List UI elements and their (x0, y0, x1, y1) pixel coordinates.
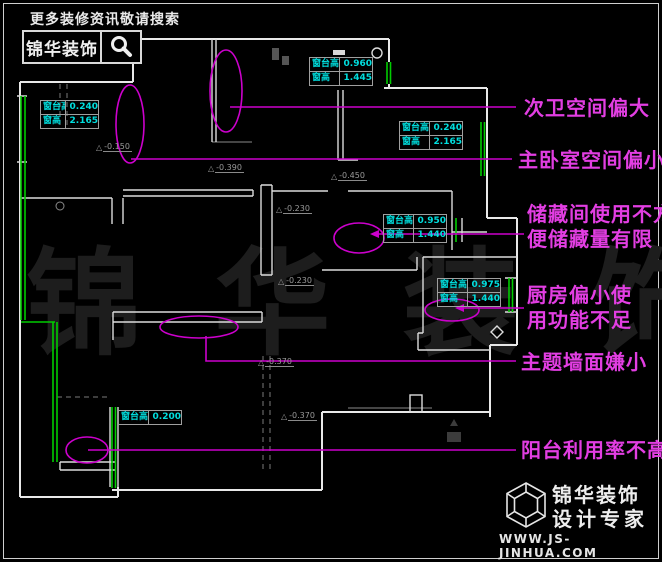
measurement-box-master-bedroom: 窗台高0.240 窗高2.165 (399, 121, 463, 150)
callout-label-bedroom: 主卧室空间偏小 (518, 148, 662, 173)
measure-label: 窗台高 (119, 411, 149, 424)
measurement-box-hall: 窗台高0.960 窗高1.445 (309, 57, 373, 86)
level-triangle-icon: △ (281, 412, 287, 421)
measure-label: 窗高 (438, 293, 468, 306)
level-marker: △-0.230 (278, 276, 314, 286)
measure-value: 0.200 (149, 411, 181, 424)
level-marker: △-0.150 (96, 142, 132, 152)
measure-label: 窗台高 (41, 101, 66, 114)
level-triangle-icon: △ (258, 358, 264, 367)
callout-text: 储藏间使用不方 (527, 202, 662, 227)
level-triangle-icon: △ (331, 172, 337, 181)
level-value: -0.230 (283, 204, 312, 214)
measurement-box-storage: 窗台高0.950 窗高1.440 (383, 214, 447, 243)
measure-label: 窗高 (41, 115, 66, 128)
measure-label: 窗高 (400, 136, 430, 149)
level-triangle-icon: △ (208, 164, 214, 173)
gray-secondary-lines (56, 142, 432, 408)
level-marker: △-0.370 (281, 411, 317, 421)
callout-label-storage: 储藏间使用不方 便储藏量有限 (527, 202, 662, 252)
floorplan-screenshot: { "header": { "search_hint": "更多装修资讯敬请搜索… (0, 0, 662, 562)
measure-value: 0.240 (66, 101, 98, 114)
header-brand-logo: 锦华装饰 (22, 30, 142, 64)
measure-label: 窗台高 (384, 215, 414, 228)
callout-line-themewall (206, 336, 516, 361)
search-hint-text: 更多装修资讯敬请搜索 (30, 9, 180, 29)
callout-text: 用功能不足 (527, 308, 632, 333)
level-value: -0.230 (285, 276, 314, 286)
measure-value: 1.440 (468, 293, 500, 306)
header-brand-name: 锦华装饰 (24, 32, 100, 62)
measure-label: 窗高 (310, 72, 340, 85)
measure-value: 0.975 (468, 279, 500, 292)
level-value: -0.150 (103, 142, 132, 152)
measure-label: 窗高 (384, 229, 414, 242)
measure-value: 0.950 (414, 215, 446, 228)
footer-website: WWW.JS-JINHUA.COM (499, 532, 662, 560)
highlight-ellipse-themewall (160, 316, 238, 338)
footer-cube-logo-icon (503, 480, 549, 534)
measure-value: 0.240 (430, 122, 462, 135)
measure-value: 2.165 (430, 136, 462, 149)
measure-label: 窗台高 (400, 122, 430, 135)
level-marker: △-0.390 (208, 163, 244, 173)
level-marker: △-0.230 (276, 204, 312, 214)
level-triangle-icon: △ (96, 143, 102, 152)
level-value: -0.370 (288, 411, 317, 421)
footer-tagline: 设计专家 (552, 503, 648, 532)
measure-value: 1.445 (340, 72, 372, 85)
level-triangle-icon: △ (278, 277, 284, 286)
search-icon (100, 32, 140, 62)
level-value: -0.450 (338, 171, 367, 181)
measure-value: 1.440 (414, 229, 446, 242)
measurement-box-balcony: 窗台高0.200 (118, 410, 182, 425)
level-marker: △-0.450 (331, 171, 367, 181)
callout-label-bath: 次卫空间偏大 (524, 96, 650, 121)
measure-label: 窗台高 (310, 58, 340, 71)
measure-value: 2.165 (66, 115, 98, 128)
callout-text: 次卫空间偏大 (524, 96, 650, 121)
highlight-ellipse-bath (210, 50, 242, 132)
callout-text: 阳台利用率不高 (521, 438, 662, 463)
callout-label-kitchen: 厨房偏小使 用功能不足 (527, 283, 632, 333)
highlight-ellipse-storage (334, 223, 384, 253)
measure-label: 窗台高 (438, 279, 468, 292)
level-marker: △-0.370 (258, 357, 294, 367)
level-triangle-icon: △ (276, 205, 282, 214)
measure-value: 0.960 (340, 58, 372, 71)
level-value: -0.370 (265, 357, 294, 367)
callout-text: 便储藏量有限 (527, 227, 662, 252)
callout-text: 主题墙面嫌小 (521, 350, 647, 375)
measurement-box-kitchen: 窗台高0.975 窗高1.440 (437, 278, 501, 307)
callout-label-themewall: 主题墙面嫌小 (521, 350, 647, 375)
measurement-box-left-bedroom: 窗台高0.240 窗高2.165 (40, 100, 99, 129)
callout-text: 主卧室空间偏小 (518, 148, 662, 173)
level-value: -0.390 (215, 163, 244, 173)
callout-text: 厨房偏小使 (527, 283, 632, 308)
callout-label-balcony: 阳台利用率不高 (521, 438, 662, 463)
